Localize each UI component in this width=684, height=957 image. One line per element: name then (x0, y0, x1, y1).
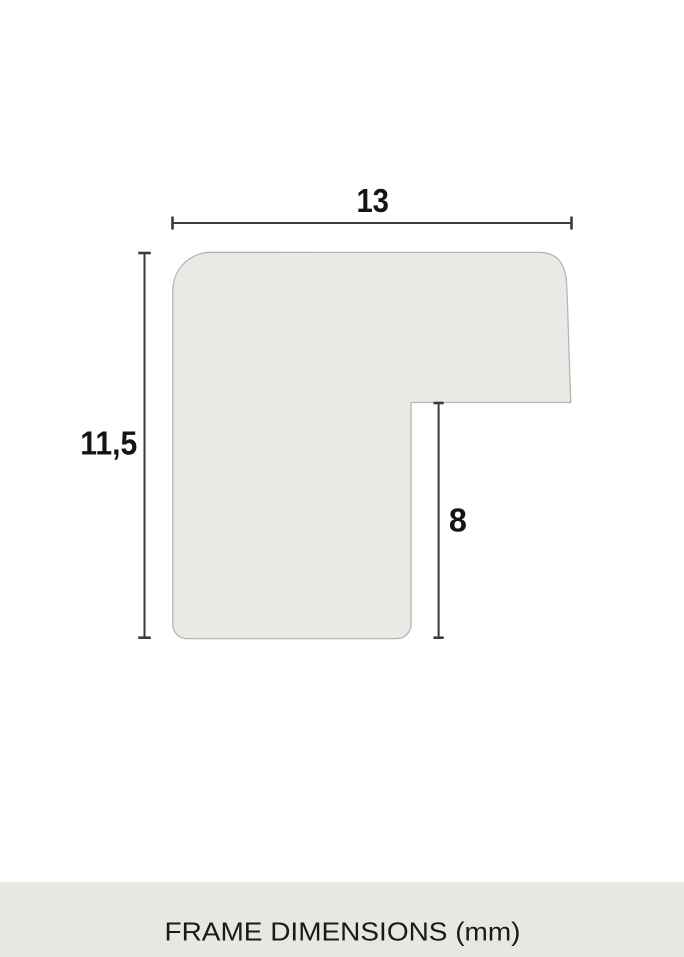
svg-text:11,5: 11,5 (80, 425, 137, 462)
svg-text:8: 8 (449, 502, 467, 539)
svg-text:FRAME DIMENSIONS (mm): FRAME DIMENSIONS (mm) (165, 917, 521, 947)
svg-text:13: 13 (356, 182, 389, 219)
